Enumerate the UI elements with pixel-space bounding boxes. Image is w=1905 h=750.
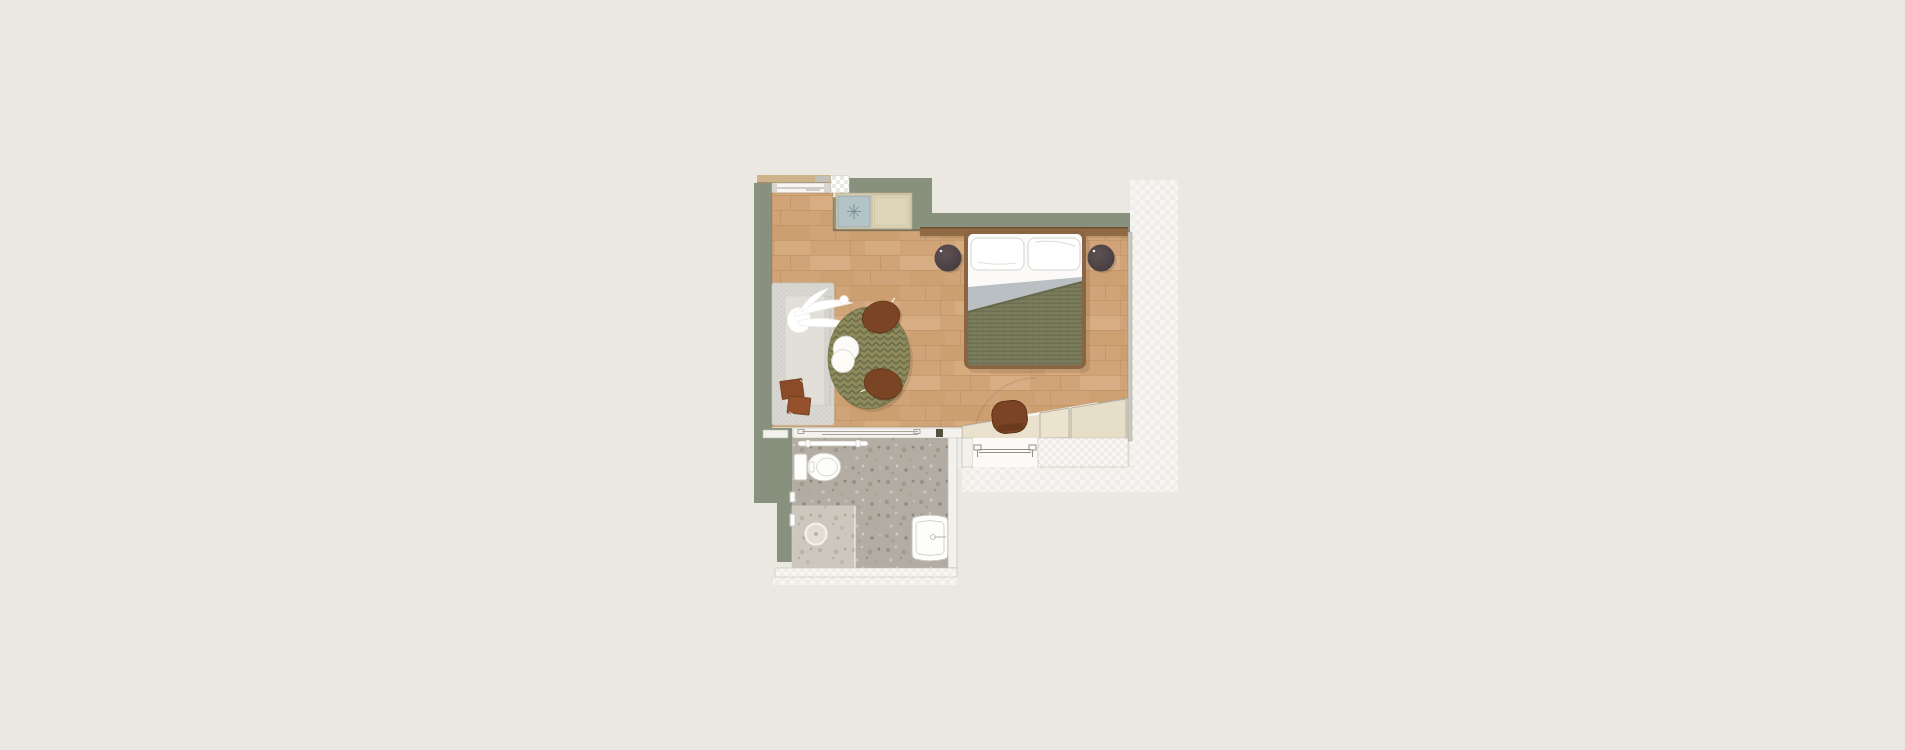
entry-wall: [962, 438, 1128, 467]
flush-plate: [790, 492, 795, 502]
desk-chair: [991, 399, 1029, 434]
bathroom-wall-right: [948, 437, 957, 568]
counter-panel: [872, 195, 910, 228]
towel-rail: [798, 440, 868, 447]
jamb-stub: [763, 430, 788, 438]
walk-in-shower: [792, 506, 855, 568]
window-jamb: [815, 176, 830, 182]
toilet: [794, 453, 841, 481]
wardrobe-door-left: [1040, 408, 1069, 439]
door-handle: [936, 429, 943, 437]
washbasin: [912, 515, 948, 561]
pillow-left: [971, 238, 1024, 270]
entry-jamb-left: [962, 438, 973, 467]
double-bed: [964, 230, 1090, 373]
bathroom-top-wall: [793, 428, 962, 438]
bathroom: [763, 428, 962, 577]
wall-right: [1128, 232, 1132, 441]
kitchenette-minibar-unit: [836, 193, 912, 229]
floor-plan-canvas: [0, 0, 1905, 750]
pillow-right: [1028, 238, 1080, 270]
shower-control: [790, 514, 795, 526]
floor-plan-screenshot: { "meta": { "type": "architectural-floor…: [0, 0, 1905, 750]
